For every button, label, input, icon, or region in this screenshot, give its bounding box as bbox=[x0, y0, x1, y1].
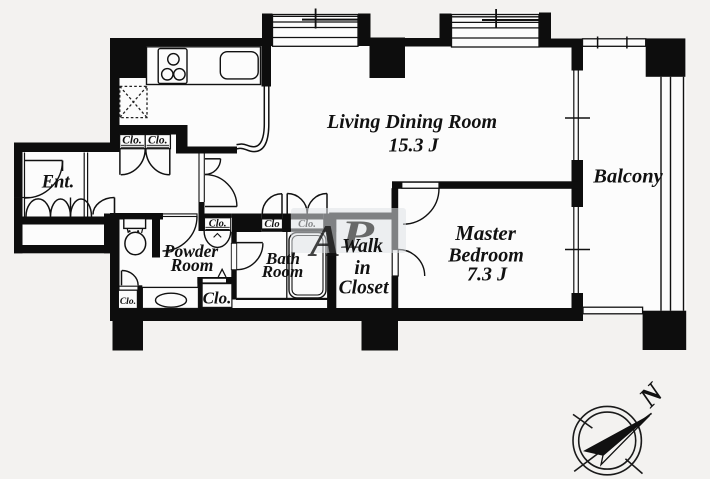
svg-text:Balcony: Balcony bbox=[592, 166, 663, 188]
svg-text:15.3 J: 15.3 J bbox=[389, 135, 440, 157]
svg-text:Clo: Clo bbox=[264, 219, 279, 230]
svg-text:Clo.: Clo. bbox=[148, 134, 168, 146]
svg-text:in: in bbox=[354, 258, 370, 279]
svg-text:A: A bbox=[307, 215, 341, 266]
svg-text:Ent.: Ent. bbox=[41, 172, 74, 192]
svg-text:Living Dining Room: Living Dining Room bbox=[326, 111, 497, 133]
svg-text:Clo.: Clo. bbox=[120, 297, 136, 307]
svg-text:Clo.: Clo. bbox=[122, 134, 142, 146]
svg-text:Room: Room bbox=[261, 262, 304, 281]
svg-text:Walk: Walk bbox=[342, 236, 383, 257]
svg-text:Room: Room bbox=[170, 255, 214, 275]
svg-text:Clo.: Clo. bbox=[203, 289, 232, 308]
svg-text:Closet: Closet bbox=[339, 277, 389, 298]
svg-text:7.3 J: 7.3 J bbox=[467, 264, 508, 286]
svg-text:Master: Master bbox=[454, 221, 517, 245]
svg-text:Clo.: Clo. bbox=[209, 218, 227, 229]
